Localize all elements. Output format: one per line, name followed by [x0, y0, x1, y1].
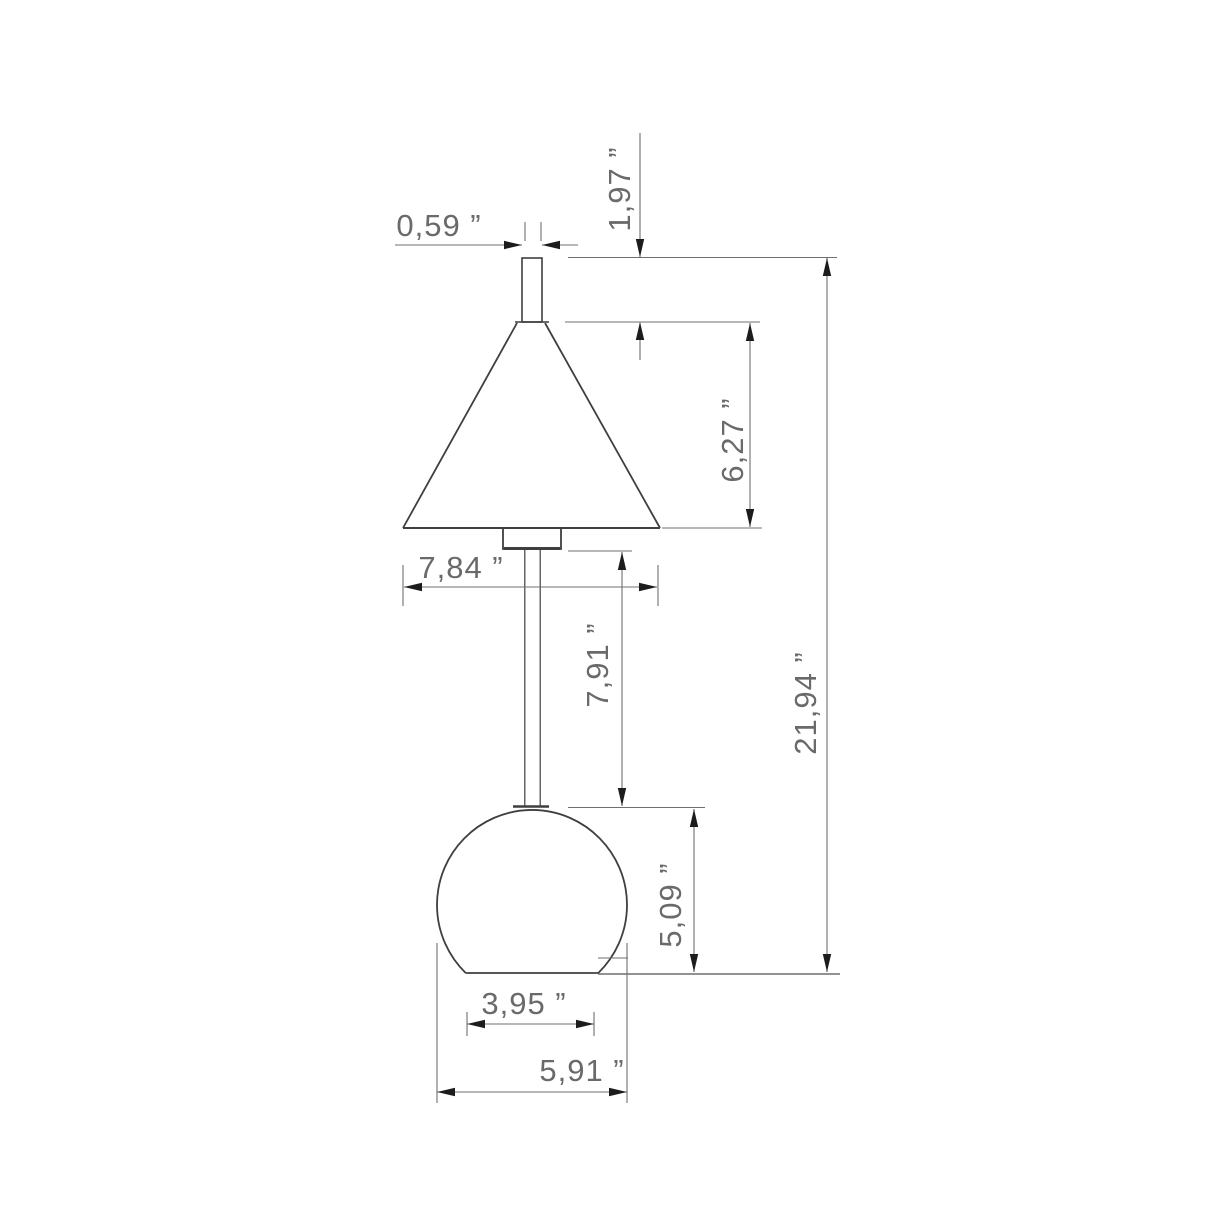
technical-drawing-canvas: 0,59 ” 1,97 ” 6,27 ” 7,84 ” 7,91 ” 21,94… [0, 0, 1214, 1214]
dim-label-base-bottom-width: 3,95 ” [481, 986, 566, 1022]
dimension-arrowhead [542, 241, 560, 249]
dimension-lines [395, 133, 840, 1103]
socket-outline [503, 528, 561, 549]
dimension-arrowhead [823, 258, 831, 276]
dimension-arrowhead [437, 1088, 455, 1096]
dim-label-stem-length: 7,91 ” [580, 622, 616, 707]
dimension-arrowhead [618, 552, 626, 570]
base-sphere-outline [437, 810, 627, 973]
dim-label-total-height: 21,94 ” [788, 651, 824, 755]
dimension-arrowhead [746, 323, 754, 341]
dimension-arrowhead [823, 954, 831, 972]
dim-label-base-width: 5,91 ” [539, 1053, 624, 1089]
dim-label-shade-height: 6,27 ” [715, 397, 751, 482]
dimension-arrowhead [746, 509, 754, 527]
dim-label-shade-diameter: 7,84 ” [418, 550, 503, 586]
dimension-arrowhead [576, 1020, 594, 1028]
dimension-arrowhead [639, 583, 657, 591]
dimension-arrowhead [504, 241, 522, 249]
finial-outline [522, 258, 542, 322]
dim-label-base-height: 5,09 ” [653, 862, 689, 947]
dimension-arrowhead [609, 1088, 627, 1096]
dimension-arrowhead [636, 322, 644, 340]
dimension-arrowheads [404, 239, 831, 1096]
dimension-arrowhead [690, 954, 698, 972]
dimension-arrowhead [690, 809, 698, 827]
lamp-outline-segment [403, 323, 517, 528]
dim-label-finial-height: 1,97 ” [602, 146, 638, 231]
dimension-arrowhead [636, 239, 644, 257]
dimension-arrowhead [618, 788, 626, 806]
dim-label-finial-width: 0,59 ” [396, 208, 481, 244]
lamp-outline-segment [545, 323, 660, 528]
